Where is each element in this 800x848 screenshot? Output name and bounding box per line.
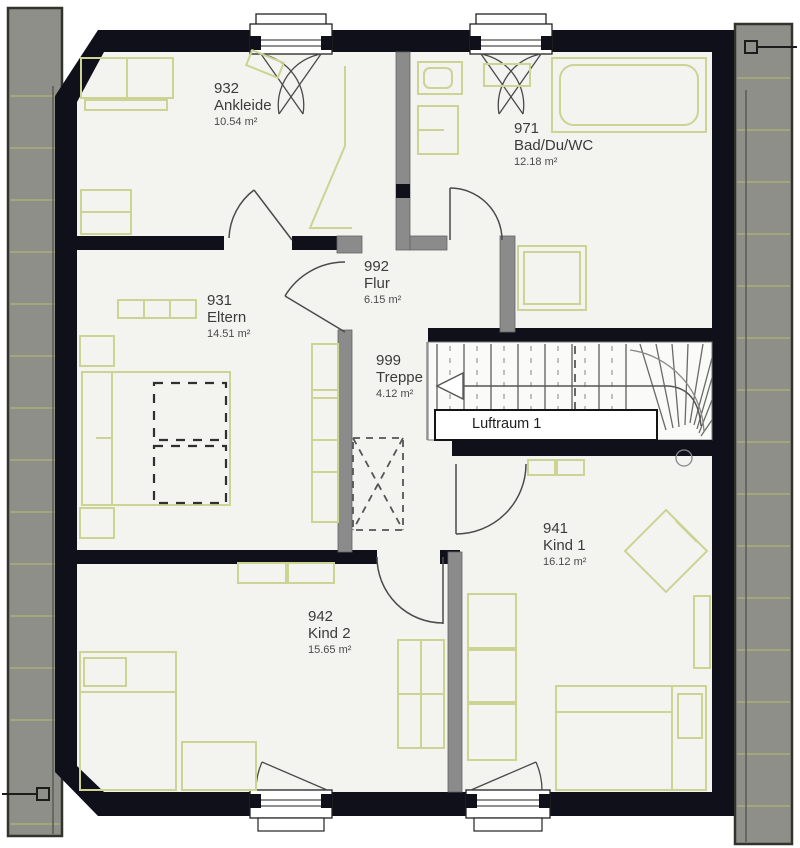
roof-strip-right xyxy=(735,24,792,844)
roof-strip-left xyxy=(8,8,62,836)
staircase xyxy=(428,342,712,440)
stair-bottom-wall xyxy=(452,440,712,456)
floor-plan: 932 Ankleide 10.54 m² 971 Bad/Du/WC 12.1… xyxy=(0,0,800,848)
luftraum-box xyxy=(435,410,657,440)
floor-plan-drawing xyxy=(0,0,800,848)
